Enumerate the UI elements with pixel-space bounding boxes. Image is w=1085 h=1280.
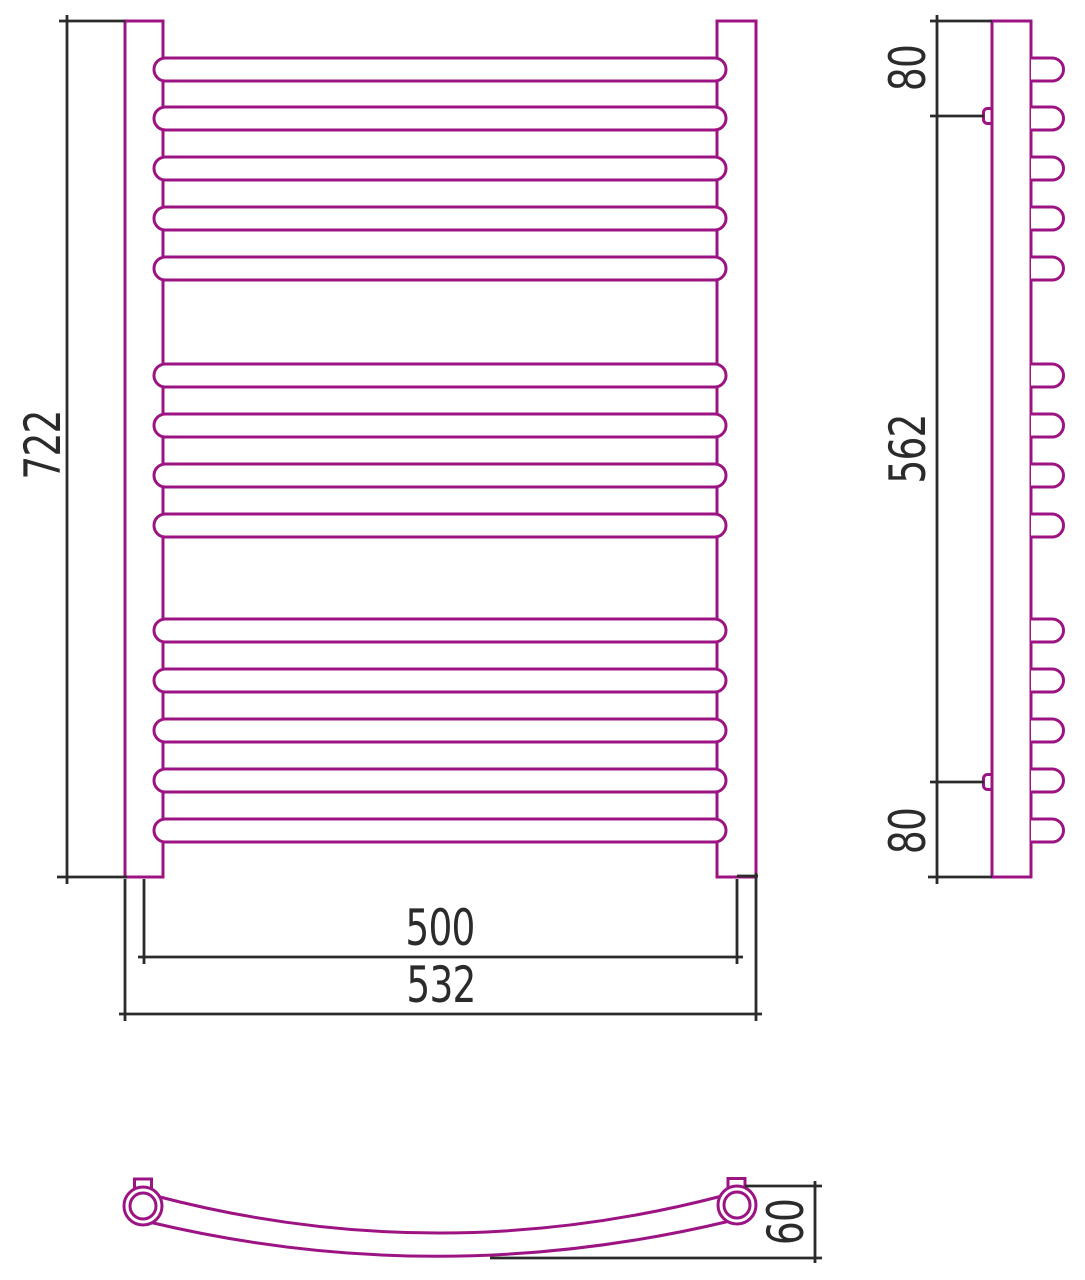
rung bbox=[154, 619, 726, 642]
rung bbox=[154, 414, 726, 437]
curved-rung-top-edge bbox=[156, 1196, 722, 1233]
bottom-depth-label: 60 bbox=[758, 1199, 816, 1245]
rung bbox=[154, 514, 726, 537]
rung-stub bbox=[1031, 514, 1064, 537]
rung-stub bbox=[1031, 364, 1064, 387]
towel-rail-drawing: 722 500 532 bbox=[0, 0, 1085, 1280]
rung bbox=[154, 464, 726, 487]
side-bottom-offset-label: 80 bbox=[880, 808, 938, 854]
side-rung-stubs bbox=[1031, 58, 1064, 842]
technical-drawing-page: 722 500 532 bbox=[0, 0, 1085, 1280]
rung-stub bbox=[1031, 107, 1064, 130]
front-height-dimension: 722 bbox=[15, 15, 127, 884]
rung bbox=[154, 207, 726, 230]
right-post bbox=[717, 21, 756, 877]
rung-stub bbox=[1031, 207, 1064, 230]
front-axis-width-label: 500 bbox=[405, 900, 474, 958]
rung bbox=[154, 157, 726, 180]
rung-stub bbox=[1031, 257, 1064, 280]
side-top-offset-label: 80 bbox=[880, 45, 938, 91]
left-post-section-inner bbox=[130, 1193, 156, 1219]
rung bbox=[154, 58, 726, 81]
rung-stub bbox=[1031, 58, 1064, 81]
bottom-view: 60 bbox=[124, 1179, 822, 1264]
rung-stub bbox=[1031, 414, 1064, 437]
rung bbox=[154, 769, 726, 792]
side-post bbox=[992, 21, 1031, 877]
right-post-section-inner bbox=[724, 1192, 750, 1218]
rung-stub bbox=[1031, 819, 1064, 842]
rung bbox=[154, 364, 726, 387]
front-overall-width-label: 532 bbox=[406, 957, 475, 1015]
front-axis-width-dimension: 500 bbox=[138, 876, 758, 964]
front-view: 722 500 532 bbox=[15, 15, 762, 1021]
rung-stub bbox=[1031, 464, 1064, 487]
curved-rung-bottom-edge bbox=[149, 1221, 730, 1256]
side-bracket-span-label: 562 bbox=[880, 414, 938, 483]
side-dimension-chain: 80 562 80 bbox=[880, 15, 992, 884]
left-post bbox=[125, 21, 163, 877]
rung bbox=[154, 107, 726, 130]
rung bbox=[154, 819, 726, 842]
rung bbox=[154, 257, 726, 280]
side-view: 80 562 80 bbox=[880, 15, 1064, 884]
rung bbox=[154, 719, 726, 742]
rung bbox=[154, 669, 726, 692]
rung-stub bbox=[1031, 719, 1064, 742]
rung-stub bbox=[1031, 157, 1064, 180]
rung-stub bbox=[1031, 769, 1064, 792]
rung-group-bottom bbox=[154, 619, 726, 842]
rung-stub bbox=[1031, 619, 1064, 642]
front-height-label: 722 bbox=[15, 410, 73, 479]
rung-group-middle bbox=[154, 364, 726, 537]
rung-stub bbox=[1031, 669, 1064, 692]
rung-group-top bbox=[154, 58, 726, 280]
